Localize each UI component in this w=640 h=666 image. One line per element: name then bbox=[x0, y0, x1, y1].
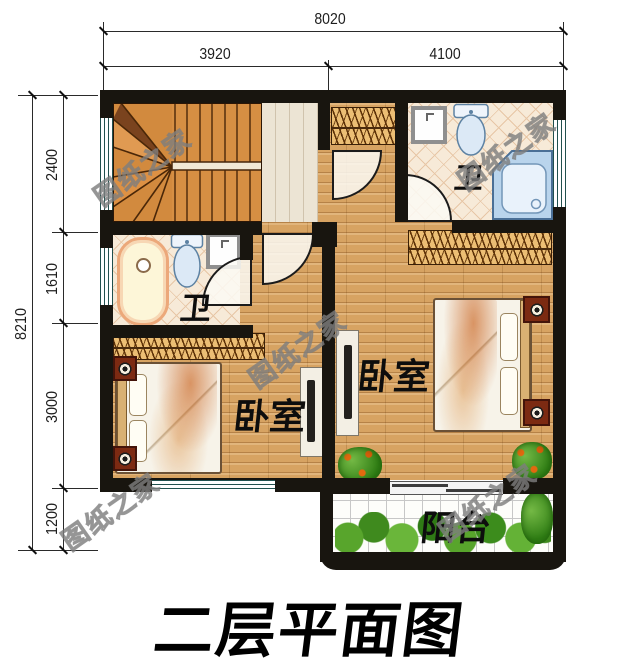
wall-bathroom-left-right bbox=[240, 233, 253, 260]
dim-ext bbox=[18, 95, 98, 96]
dim-side-4: 1200 bbox=[44, 490, 62, 548]
floor-plan-canvas: 8020 3920 4100 8210 2400 1610 3000 1200 bbox=[0, 0, 640, 666]
room-label-bathroom-right: 卫 bbox=[447, 155, 491, 197]
room-label-bedroom-right: 卧室 bbox=[331, 348, 456, 400]
dim-line-side-total bbox=[32, 95, 33, 550]
staircase bbox=[113, 103, 262, 222]
plant bbox=[521, 492, 553, 544]
bed-pillow bbox=[500, 367, 518, 415]
room-label-bedroom-left: 卧室 bbox=[207, 388, 332, 440]
wall-slider-stub-left bbox=[333, 478, 390, 494]
wall-bathroom-right-bottom bbox=[452, 220, 553, 233]
window-bathroom-right bbox=[553, 120, 566, 207]
wall-junction bbox=[312, 222, 337, 247]
dim-ext bbox=[18, 550, 98, 551]
dim-ext bbox=[52, 232, 98, 233]
drain-icon bbox=[136, 258, 151, 273]
dim-ext bbox=[52, 488, 98, 489]
lamp-icon bbox=[530, 303, 544, 317]
wall-slider-stub-right bbox=[503, 478, 553, 494]
nightstand bbox=[113, 446, 137, 471]
bed-duvet bbox=[147, 364, 217, 472]
room-label-bathroom-left: 卫 bbox=[174, 283, 219, 328]
dim-side-3: 3000 bbox=[44, 378, 62, 436]
dim-side-total: 8210 bbox=[13, 295, 31, 353]
balcony-wall-bottom bbox=[320, 552, 566, 570]
bed-pillow bbox=[500, 313, 518, 361]
sliding-door-leaf bbox=[446, 489, 501, 492]
wall-bathroom-right-left bbox=[395, 103, 408, 222]
lamp-icon bbox=[118, 362, 132, 376]
dim-top-right: 4100 bbox=[401, 46, 489, 64]
window-bedroom-left bbox=[152, 480, 275, 492]
dim-top-left: 3920 bbox=[171, 46, 259, 64]
lamp-icon bbox=[530, 406, 544, 420]
washer-right bbox=[411, 106, 447, 144]
outer-wall-top bbox=[100, 90, 566, 103]
window-bathroom-left bbox=[100, 248, 113, 305]
balcony-wall-left bbox=[320, 478, 333, 562]
wardrobe-bedroom-right-top bbox=[331, 107, 402, 145]
door-bedroom-right bbox=[332, 150, 382, 200]
nightstand bbox=[523, 399, 550, 426]
wall-hall-right bbox=[318, 103, 330, 150]
dim-top-total: 8020 bbox=[286, 11, 374, 29]
dim-line-top-split bbox=[103, 66, 563, 67]
wall-bedroom-divider bbox=[322, 247, 335, 478]
stair-landing-floor bbox=[262, 103, 318, 222]
lamp-icon bbox=[118, 452, 132, 466]
door-bathroom-right bbox=[404, 174, 452, 222]
dim-ext bbox=[52, 323, 98, 324]
nightstand bbox=[113, 356, 137, 381]
dim-side-1: 2400 bbox=[44, 136, 62, 194]
plan-title: 二层平面图 bbox=[85, 582, 536, 666]
room-label-balcony: 阳台 bbox=[393, 500, 518, 551]
bathtub bbox=[117, 237, 169, 326]
sliding-door-leaf bbox=[392, 484, 448, 487]
door-bedroom-left bbox=[262, 233, 314, 285]
nightstand bbox=[523, 296, 550, 323]
balcony-sliding-door bbox=[390, 481, 503, 495]
plant bbox=[512, 442, 552, 480]
wardrobe-bedroom-right bbox=[408, 230, 552, 265]
corner-shower bbox=[492, 150, 553, 220]
window-stairs bbox=[100, 118, 113, 210]
dim-line-top-total bbox=[103, 31, 563, 32]
sink-right bbox=[452, 103, 490, 159]
dim-side-2: 1610 bbox=[44, 250, 62, 308]
